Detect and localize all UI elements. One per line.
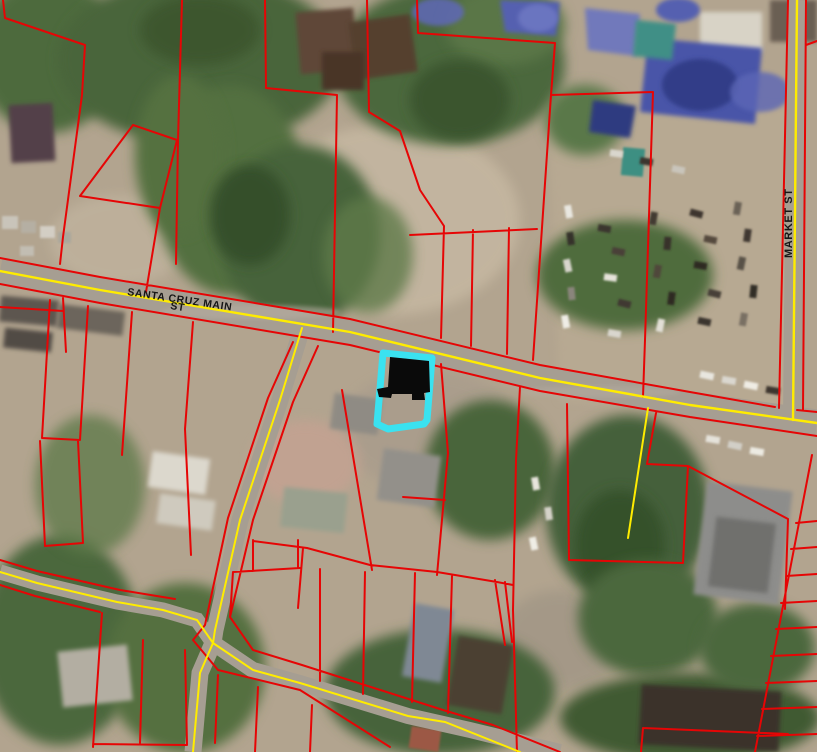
street-label-santa-cruz-line2: ST — [170, 300, 186, 314]
street-label-market: MARKET ST — [783, 188, 795, 258]
map-viewport[interactable]: SANTA CRUZ MAIN ST MARKET ST — [0, 0, 817, 752]
map-canvas[interactable]: SANTA CRUZ MAIN ST MARKET ST — [0, 0, 817, 752]
